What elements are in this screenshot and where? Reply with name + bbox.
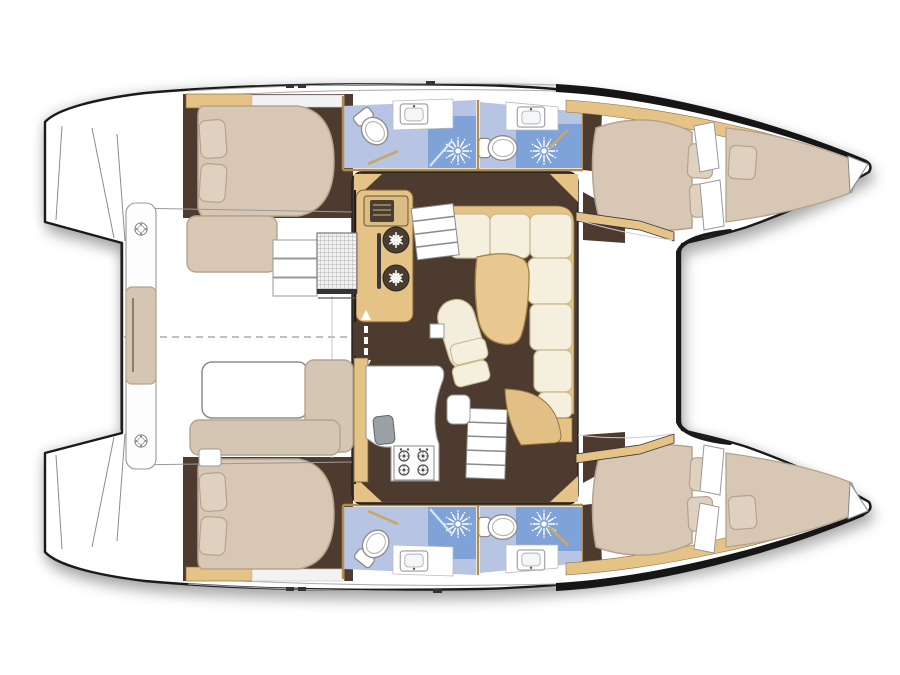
salon [352, 172, 578, 504]
pillow [728, 495, 757, 530]
shelf [252, 95, 344, 107]
burner-icon [418, 451, 428, 461]
galley-counter [354, 358, 444, 482]
port-aft-head [344, 99, 476, 168]
bulkhead [700, 180, 724, 230]
galley-sink [373, 415, 396, 445]
steps-to-starboard-hull [466, 408, 507, 479]
sink-icon [400, 551, 428, 571]
double-berth [592, 120, 692, 230]
fridge-handle [377, 233, 381, 289]
forward-crossbeam [678, 231, 730, 443]
sink-icon [400, 104, 428, 124]
burner-icon [399, 465, 409, 475]
cockpit-bench [187, 216, 277, 272]
cooler-box [199, 449, 221, 466]
starboard-aft-head [344, 507, 476, 576]
sink-icon [517, 550, 545, 570]
stove [394, 446, 434, 480]
shower-stall [516, 124, 582, 168]
starboard-forepeak [726, 453, 868, 547]
galley-fridge-unit [356, 190, 413, 322]
steps-to-port-hull [411, 204, 459, 260]
salon-table [475, 254, 529, 345]
toilet-icon [479, 136, 518, 161]
bulkhead [700, 445, 724, 495]
pillow [728, 145, 757, 180]
port-forepeak [726, 128, 868, 222]
transom-bench-cushion [126, 287, 156, 384]
floor-hatch [430, 324, 444, 338]
double-berth [592, 445, 692, 555]
pillow [199, 163, 228, 203]
port-aft-cabin [183, 94, 353, 218]
pillow [199, 472, 228, 512]
transom-platform [122, 203, 157, 469]
floor-plan-stage [0, 0, 900, 675]
cockpit-table [202, 362, 308, 418]
deck-steps [273, 240, 317, 296]
shower-stall [516, 507, 582, 551]
sink-icon [517, 107, 545, 127]
burner-icon [418, 465, 428, 475]
deck-hatch-icon [135, 223, 147, 235]
pillow [199, 516, 228, 556]
burner-icon [399, 451, 409, 461]
deck-hatch-icon [135, 435, 147, 447]
mesh-locker [317, 233, 357, 298]
catamaran-floor-plan [0, 0, 900, 675]
nav-stool [447, 395, 470, 424]
starboard-aft-cabin [183, 457, 353, 581]
shelf [252, 569, 344, 581]
pillow [199, 119, 228, 159]
toilet-icon [479, 515, 518, 540]
